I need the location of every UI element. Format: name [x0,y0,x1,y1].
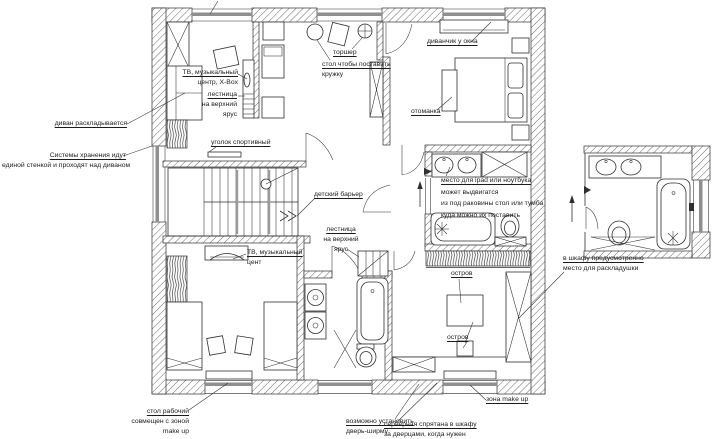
vanity [589,156,661,178]
label-server-closet: серверная спрятана в шкафу за дверцами, … [384,420,477,439]
window-bottom-3 [443,381,497,394]
closet-hanging [426,251,530,266]
door-hall [363,185,391,212]
label-ottoman: отоманка [411,107,441,117]
label-tv-music-center: ТВ, музыкальный цент [247,248,302,268]
sink [621,159,641,175]
door [586,207,598,229]
label-storage-systems: Системы хранения идут единой стенкой и п… [2,151,126,171]
daybed [167,302,202,370]
shower-icon [584,186,591,194]
chair [328,22,349,46]
sink [596,159,616,175]
nightstand [512,38,529,53]
shelf [263,22,284,40]
label-tv-music-center-xbox: ТВ, музыкальный центр, X-Box [178,68,238,88]
hanging-closet [167,256,187,302]
window-left [153,146,165,222]
label-child-barrier: детский барьер [314,190,363,200]
island-stool [457,341,473,356]
wardrobe [482,152,527,177]
door-bedroom [386,23,412,54]
window-right [694,180,709,232]
toilet [356,344,376,367]
floor-plan-canvas: диван раскладывается Системы хранения ид… [0,0,714,439]
window-top-2 [317,9,382,21]
bathtub [657,179,694,249]
tall-wardrobe [506,272,531,362]
label-stairs-upper-tier-left: лестница на верхний ярус [192,90,237,120]
label-folding-bed-closet: в шкафу предусмотренно место для расклад… [563,254,644,274]
label-stairs-upper-tier-right: лестница на верхний ярус [322,225,360,255]
sport-bar [208,152,241,157]
label-floor-lamp: торшер [333,48,357,58]
pillow [508,93,523,118]
chair [235,336,253,355]
label-work-desk: стол рабочий совмещен с зоной make up [109,407,189,437]
tv-cabinet [205,246,248,260]
label-makeup-zone: зона make up [486,395,528,405]
nightstand [512,125,529,140]
label-island-top: остров [451,269,472,279]
double-bed [455,58,527,122]
round-table [307,24,323,40]
staircase [168,168,298,260]
detached-bathroom-plan [569,146,710,258]
chair [207,336,226,356]
window-top-1 [192,9,252,21]
bottom-right-room [392,272,531,379]
dryer [305,312,326,339]
window-bottom-2 [318,381,372,394]
server-cabinet [393,357,435,372]
up-arrow [569,195,574,222]
floor-lamp-symbol [358,24,372,38]
window-seat [440,20,508,33]
tv-ladder-unit [243,60,254,118]
child-barrier-symbol [280,211,296,221]
window-bottom-1 [205,381,252,394]
door-master-bath [402,145,424,175]
label-mug-table: стол чтобы поставить кружку [322,60,391,80]
ladder-upper-tier [358,251,388,276]
wardrobe [167,22,189,68]
island-table [447,295,483,326]
daybed [264,302,297,370]
sink [458,157,476,173]
bed-kids [262,45,284,78]
door-bottom-right-room [394,251,415,270]
label-window-sofa: диванчик у окна [427,37,478,47]
up-arrow [417,181,422,207]
laundry-box [495,237,526,246]
washer [305,284,326,311]
label-ipad-place: место для ipad или ноутбука может выдвиг… [441,175,543,221]
makeup-desk [444,371,496,379]
ottoman-symbol [442,70,457,111]
tap [689,203,694,211]
faucet-sparkle [435,222,449,236]
second-bathroom [305,278,388,368]
hanging-storage [167,120,187,148]
sink [435,157,453,173]
label-sofa-folds-out: диван раскладывается [27,119,127,129]
work-desk [206,371,252,379]
pouf [213,46,238,69]
door-kids-room [306,133,333,161]
pillow [508,63,523,88]
bathtub [357,278,388,344]
office-room [167,256,297,379]
vanity [432,154,481,177]
label-island-bottom: остров [447,333,468,343]
label-sport-corner: уголок спортивный [211,138,271,148]
window-top-3 [443,9,505,21]
bed-kids-2 [262,97,284,118]
